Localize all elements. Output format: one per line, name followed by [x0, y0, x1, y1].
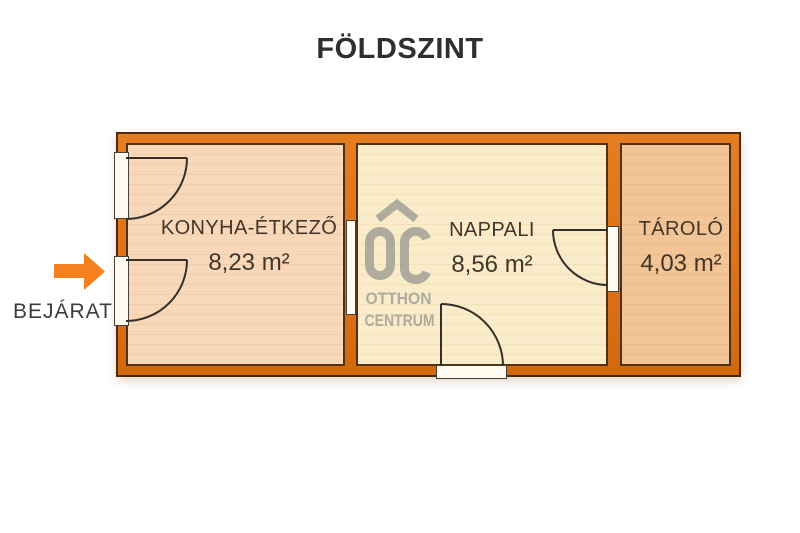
- door-opening-entrance: [114, 256, 129, 326]
- room-name: KONYHA-ÉTKEZŐ: [144, 216, 354, 240]
- room-label-konyha: KONYHA-ÉTKEZŐ 8,23 m²: [144, 216, 354, 278]
- floor-plan: OTTHON CENTRUM KONYHA-ÉTKEZŐ 8,23 m² NAP…: [116, 132, 741, 377]
- logo-text-centrum: CENTRUM: [365, 312, 435, 330]
- logo-letter-o: [370, 232, 391, 276]
- room-area: 8,23 m²: [144, 248, 354, 278]
- entrance-label: BEJÁRAT: [13, 300, 113, 324]
- entrance-arrow-icon: [50, 250, 110, 292]
- room-name: TÁROLÓ: [591, 217, 771, 241]
- door-opening-nappali-bottom: [436, 365, 507, 379]
- room-name: NAPPALI: [402, 218, 582, 242]
- room-area: 8,56 m²: [402, 250, 582, 280]
- room-area: 4,03 m²: [591, 249, 771, 279]
- room-label-nappali: NAPPALI 8,56 m²: [402, 218, 582, 280]
- room-label-tarolo: TÁROLÓ 4,03 m²: [591, 217, 771, 279]
- logo-roof-icon: [378, 204, 416, 219]
- logo-text-otthon: OTTHON: [366, 290, 432, 308]
- page-title: FÖLDSZINT: [0, 33, 800, 66]
- door-opening-konyha-top: [114, 152, 129, 219]
